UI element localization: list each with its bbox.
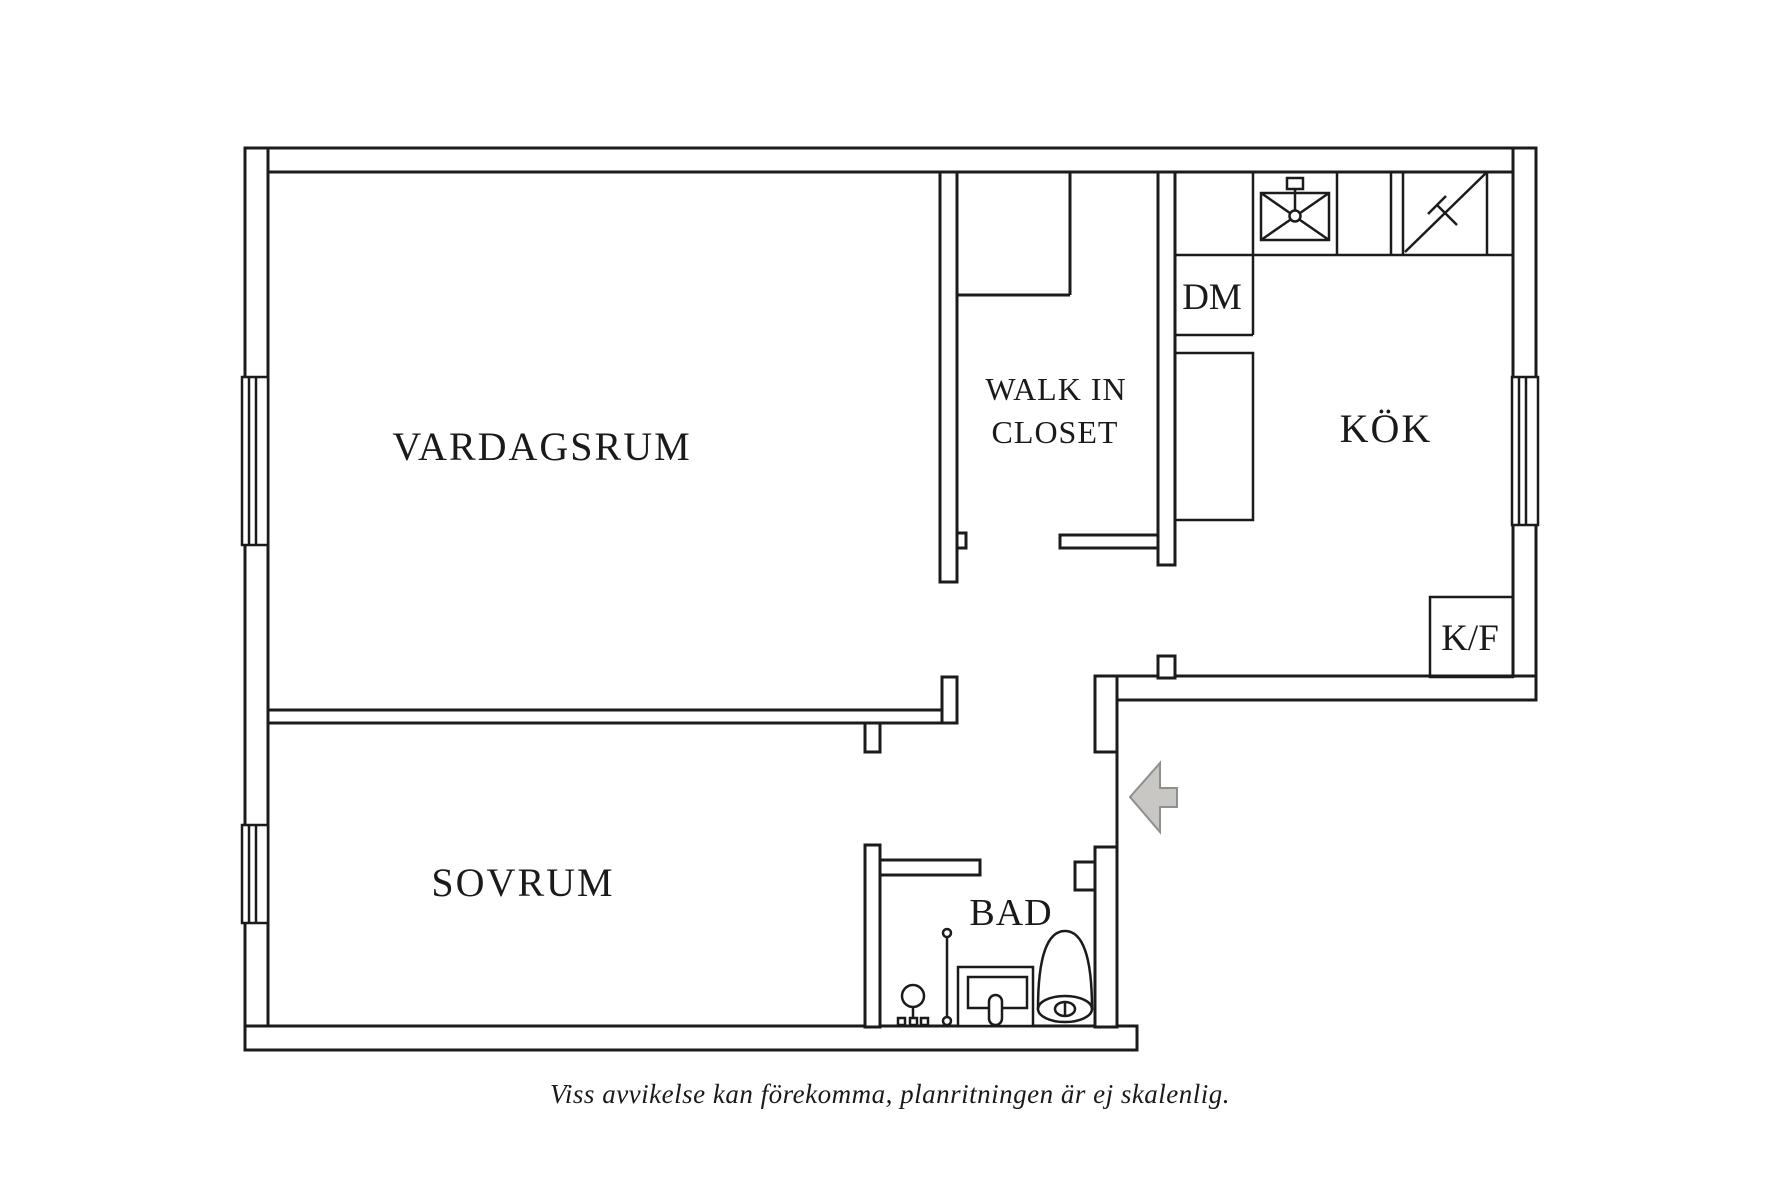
washbasin-icon xyxy=(958,967,1033,1026)
window-icon xyxy=(242,377,268,545)
shower-mixer-icon xyxy=(898,985,928,1025)
wall-bathroom-left xyxy=(865,845,880,1027)
doorpost-bedroom xyxy=(865,723,880,752)
doorpost-bathroom xyxy=(1075,862,1095,890)
window-icon xyxy=(242,825,268,923)
bathroom-fixtures xyxy=(898,929,1092,1026)
exterior-walls xyxy=(245,148,1536,1050)
wall-bathroom-top xyxy=(880,860,980,875)
label-vardagsrum: VARDAGSRUM xyxy=(392,424,691,469)
disclaimer-caption: Viss avvikelse kan förekomma, planritnin… xyxy=(550,1079,1230,1109)
sink-icon xyxy=(1261,178,1329,240)
entrance-arrow-icon xyxy=(1130,763,1177,832)
label-dishwasher: DM xyxy=(1182,277,1242,318)
doorpost-kitchen xyxy=(1158,656,1175,678)
label-kok: KÖK xyxy=(1340,406,1433,451)
wall-kitchen-bottom xyxy=(1117,676,1536,700)
wall-hall-stub xyxy=(942,677,957,723)
window-icon xyxy=(1512,377,1538,525)
wall-bottom xyxy=(245,1026,1137,1050)
wall-top xyxy=(245,148,1536,172)
floorplan-canvas: VARDAGSRUM SOVRUM KÖK WALK IN CLOSET BAD… xyxy=(0,0,1780,1187)
label-sovrum: SOVRUM xyxy=(431,860,614,905)
wall-livingroom-right xyxy=(940,172,957,582)
doorpost-livingroom xyxy=(957,533,966,548)
wall-closet-right xyxy=(1158,172,1175,565)
wall-entry-pillar xyxy=(1095,676,1117,752)
label-walk-in-closet-line2: CLOSET xyxy=(992,414,1119,450)
wall-closet-bottom xyxy=(1060,535,1158,548)
shower-rail-icon xyxy=(943,929,951,1025)
wall-bathroom-right xyxy=(1095,847,1117,1027)
tall-cabinet xyxy=(1175,353,1253,520)
label-bad: BAD xyxy=(969,892,1052,934)
wall-livingroom-bedroom xyxy=(268,710,942,723)
toilet-icon xyxy=(1038,931,1092,1022)
stove-icon xyxy=(1405,173,1486,252)
floorplan-drawing: VARDAGSRUM SOVRUM KÖK WALK IN CLOSET BAD… xyxy=(0,0,1780,1187)
label-fridge-freezer: K/F xyxy=(1441,618,1499,659)
label-walk-in-closet-line1: WALK IN xyxy=(985,371,1126,407)
